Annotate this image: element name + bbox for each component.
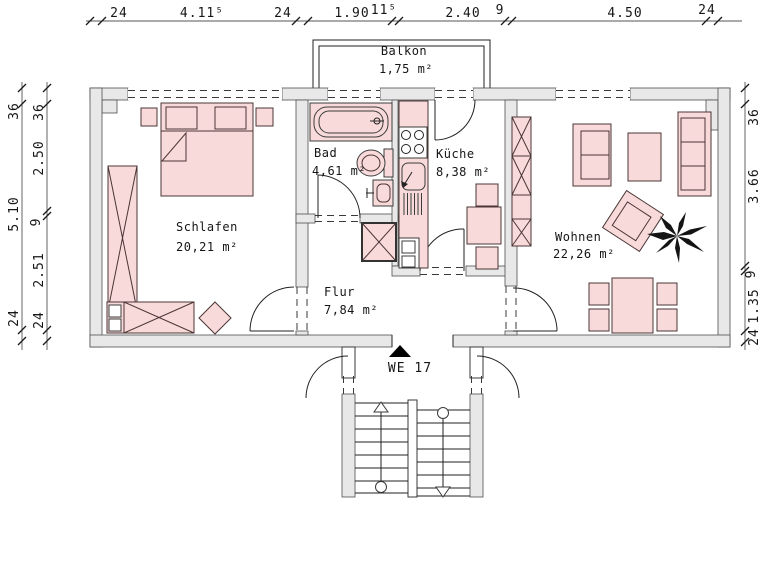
schlafen-area: 20,21 m² — [176, 240, 238, 254]
door-schlafen — [250, 287, 294, 331]
dim-left-inner-1: 2.50 — [32, 140, 47, 175]
door-bad — [318, 175, 360, 218]
fridge — [399, 238, 419, 268]
furniture-kueche: Küche 8,38 m² — [399, 101, 501, 269]
flur-label: Flur — [324, 285, 355, 299]
dim-top-3: 1.90 — [334, 6, 369, 21]
shaft — [362, 223, 396, 261]
kueche-area: 8,38 m² — [436, 165, 490, 179]
wohnen-area: 22,26 m² — [553, 247, 615, 261]
armchair — [628, 133, 661, 181]
dining-chair-4 — [657, 309, 677, 331]
dim-top-1: 4.11⁵ — [180, 6, 224, 21]
sofa-right — [678, 112, 711, 196]
nightstand-right — [256, 108, 273, 126]
dim-left-outer-2: 24 — [7, 309, 22, 327]
dim-right-1: 3.66 — [747, 168, 762, 203]
balcony-area: 1,75 m² — [379, 62, 433, 76]
door-balcony — [435, 100, 475, 140]
cabinet-small — [107, 302, 124, 333]
bad-area: 4,61 m² — [312, 164, 366, 178]
floor-plan: 24 4.11⁵ 24 1.90 11⁵ 2.40 9 4.50 24 36 5… — [0, 0, 766, 575]
bed — [161, 103, 253, 196]
wohnen-label: Wohnen — [555, 230, 601, 244]
dresser — [124, 302, 194, 333]
dim-top-0: 24 — [110, 6, 128, 21]
dim-top-5: 2.40 — [445, 6, 480, 21]
dim-top-8: 24 — [698, 3, 716, 18]
wall-unit — [512, 117, 531, 246]
furniture-wohnen: Wohnen 22,26 m² — [512, 112, 711, 333]
dim-top-6: 9 — [496, 3, 505, 18]
dining-chair-1 — [589, 283, 609, 305]
dim-left-outer-0: 36 — [7, 102, 22, 120]
balcony-label: Balkon — [381, 44, 427, 58]
kitchen-chair-top — [476, 184, 498, 206]
bathtub — [310, 103, 392, 141]
sink-bad — [366, 180, 393, 206]
wardrobe — [108, 166, 137, 310]
stair-direction-down — [436, 408, 450, 498]
dim-right-0: 36 — [747, 108, 762, 126]
dim-left-outer-1: 5.10 — [7, 196, 22, 231]
door-wohnen — [513, 288, 557, 331]
kitchen-chair-bottom — [476, 247, 498, 269]
dim-left-inner-3: 2.51 — [32, 252, 47, 287]
balcony: Balkon 1,75 m² — [313, 40, 490, 90]
nightstand-left — [141, 108, 157, 126]
dim-top-4: 11⁵ — [371, 3, 397, 18]
dim-left-inner-0: 36 — [32, 103, 47, 121]
fixtures-bad: Bad 4,61 m² — [310, 103, 396, 261]
schlafen-label: Schlafen — [176, 220, 238, 234]
kueche-label: Küche — [436, 147, 475, 161]
stool — [199, 302, 231, 334]
dining-chair-3 — [657, 283, 677, 305]
dim-right-2: 9 — [744, 270, 759, 279]
dim-left-inner-2: 9 — [29, 218, 44, 227]
sofa-left — [573, 124, 611, 186]
dim-left-inner-4: 24 — [32, 311, 47, 329]
flur-area: 7,84 m² — [324, 303, 378, 317]
dim-top-2: 24 — [274, 6, 292, 21]
dining-chair-2 — [589, 309, 609, 331]
stove — [399, 127, 427, 158]
entrance: WE 17 — [388, 345, 432, 376]
entry-label: WE 17 — [388, 361, 432, 376]
dim-top-7: 4.50 — [607, 6, 642, 21]
kitchen-table — [467, 207, 501, 244]
dim-right-4: 24 — [747, 328, 762, 346]
dim-right-3: 1.35 — [747, 288, 762, 323]
bad-label: Bad — [314, 146, 337, 160]
furniture-schlafen: Schlafen 20,21 m² — [107, 103, 273, 334]
stair-stringer — [408, 400, 417, 497]
flur: Flur 7,84 m² — [324, 285, 378, 317]
coffee-table — [603, 191, 664, 252]
dining-table — [612, 278, 653, 333]
